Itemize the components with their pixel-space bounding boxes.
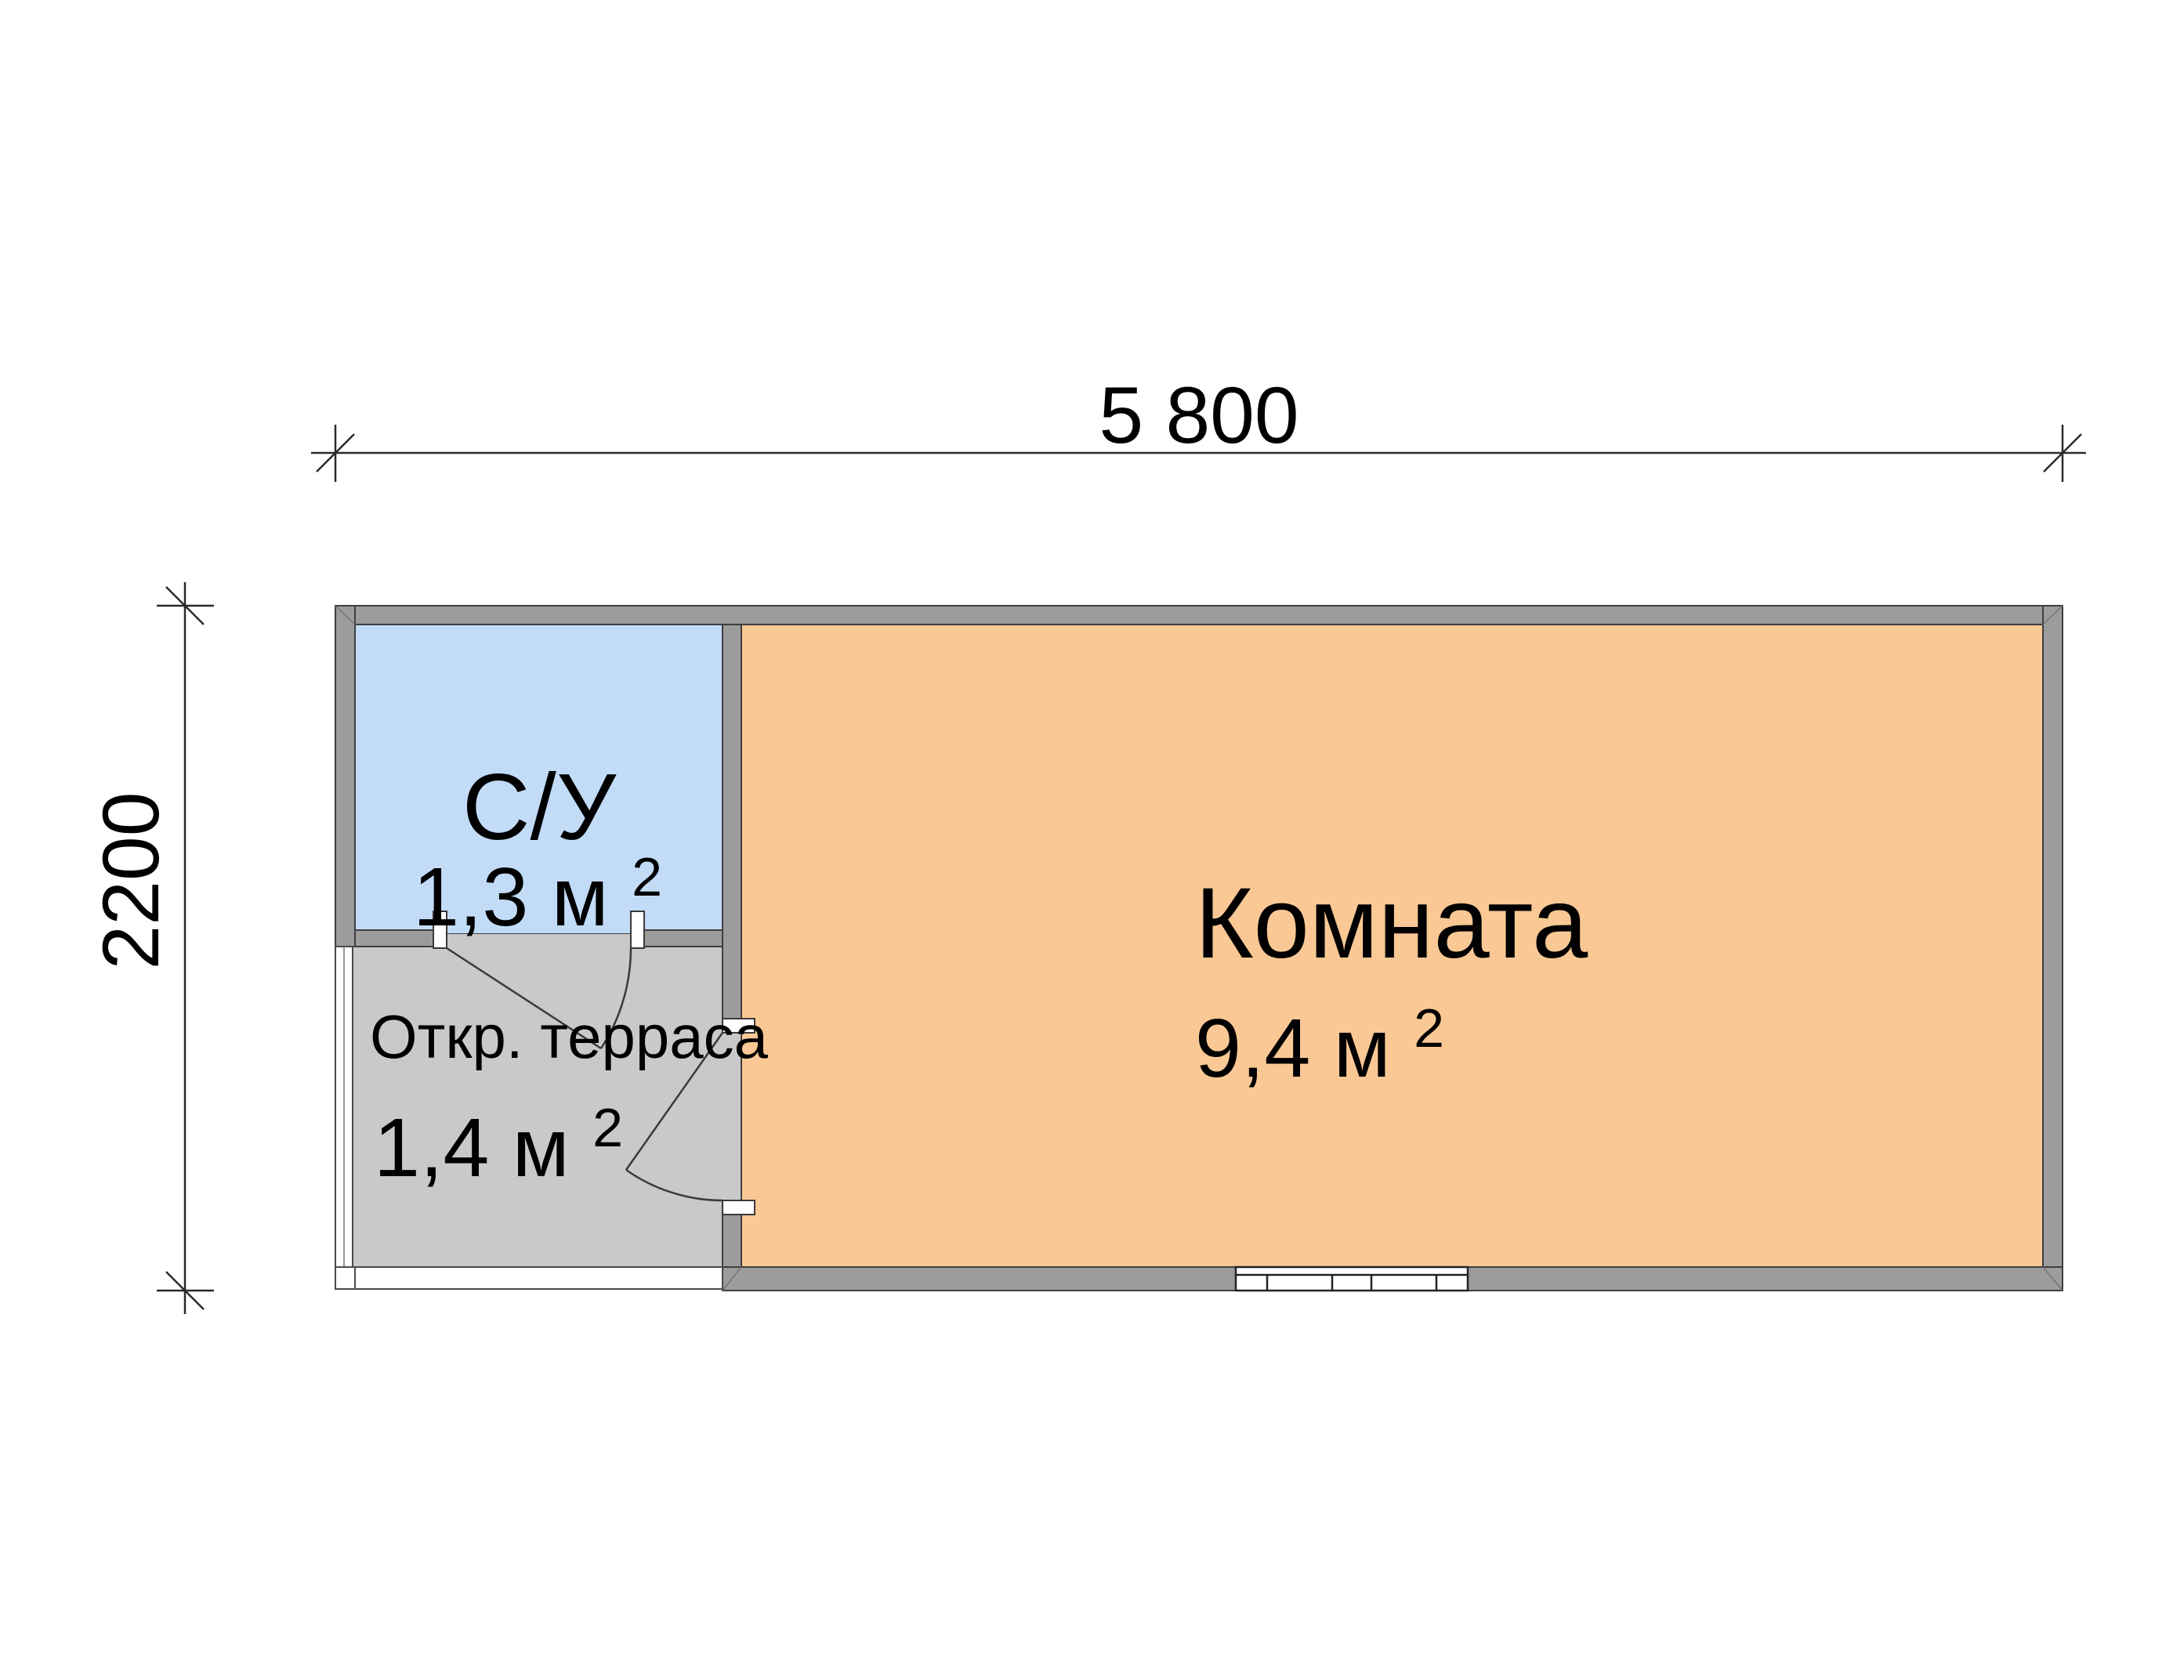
bathroom-bottom-wall-right bbox=[644, 930, 723, 947]
terrace-area-label: 1,4 м 2 bbox=[374, 1097, 623, 1194]
floor-plan-page: 5 800 2200 С/У 1,3 м 2 Комната 9,4 м 2 О… bbox=[0, 0, 2184, 1680]
living-room-area-sup: 2 bbox=[1414, 997, 1444, 1059]
terrace-bottom-open-edge bbox=[335, 1267, 723, 1289]
bathroom-label: С/У bbox=[462, 755, 617, 860]
partition-wall-upper bbox=[723, 625, 741, 1019]
bathroom-area-value: 1,3 м bbox=[413, 851, 609, 943]
room-door-jamb-lower bbox=[723, 1200, 755, 1215]
bathroom-door-jamb-right bbox=[631, 911, 644, 948]
floor-plan-svg: 5 800 2200 С/У 1,3 м 2 Комната 9,4 м 2 О… bbox=[0, 0, 2184, 1680]
partition-wall-lower bbox=[723, 1215, 741, 1267]
living-room-area-label: 9,4 м 2 bbox=[1195, 997, 1444, 1095]
bathroom-area-label: 1,3 м 2 bbox=[413, 846, 662, 943]
terrace-area-value: 1,4 м bbox=[374, 1102, 570, 1194]
living-room-label: Комната bbox=[1195, 867, 1588, 979]
right-wall bbox=[2043, 606, 2063, 1291]
living-room-area-value: 9,4 м bbox=[1195, 1002, 1391, 1095]
left-wall bbox=[335, 606, 355, 947]
window bbox=[1236, 1267, 1468, 1291]
top-wall bbox=[335, 606, 2063, 625]
terrace-corner-post bbox=[335, 1267, 355, 1289]
terrace-label: Откр. терраса bbox=[370, 1002, 769, 1071]
height-dimension-label: 2200 bbox=[86, 792, 176, 970]
terrace-area-sup: 2 bbox=[592, 1097, 623, 1158]
bathroom-area-sup: 2 bbox=[632, 846, 662, 907]
width-dimension-label: 5 800 bbox=[1099, 371, 1298, 460]
terrace-floor bbox=[353, 934, 723, 1267]
